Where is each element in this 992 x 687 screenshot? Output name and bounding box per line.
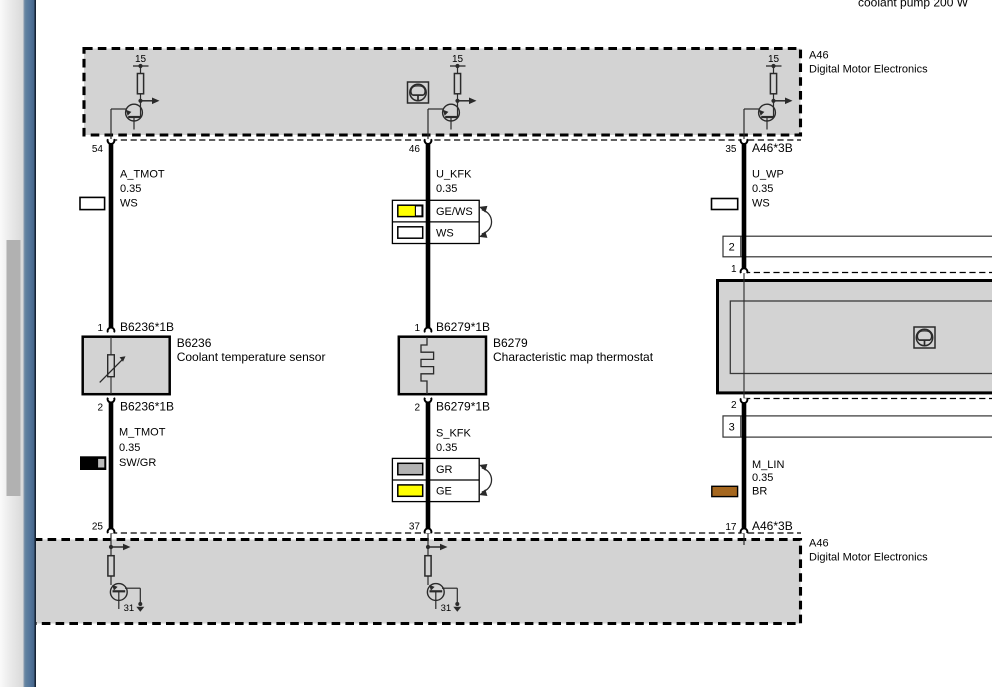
svg-text:B6236*1B: B6236*1B xyxy=(120,320,174,334)
svg-text:15: 15 xyxy=(452,54,464,65)
svg-text:B6279*1B: B6279*1B xyxy=(436,320,490,334)
svg-text:2: 2 xyxy=(731,400,737,411)
svg-text:2: 2 xyxy=(414,403,420,414)
svg-text:25: 25 xyxy=(92,522,104,533)
svg-text:A46*3B: A46*3B xyxy=(752,141,793,155)
svg-text:Digital Motor Electronics: Digital Motor Electronics xyxy=(809,63,928,75)
svg-text:M_LIN: M_LIN xyxy=(752,459,784,471)
svg-text:1: 1 xyxy=(97,323,103,334)
svg-text:A46*3B: A46*3B xyxy=(752,519,793,533)
svg-text:S_KFK: S_KFK xyxy=(436,427,472,439)
svg-text:0.35: 0.35 xyxy=(752,183,773,195)
svg-text:BR: BR xyxy=(752,485,767,497)
svg-text:35: 35 xyxy=(725,144,737,155)
svg-text:1: 1 xyxy=(731,264,737,275)
svg-text:0.35: 0.35 xyxy=(120,183,141,195)
svg-text:Digital Motor Electronics: Digital Motor Electronics xyxy=(809,552,928,564)
svg-text:0.35: 0.35 xyxy=(436,183,457,195)
svg-text:B6279: B6279 xyxy=(493,336,528,350)
svg-text:31: 31 xyxy=(124,603,135,614)
svg-text:GE/WS: GE/WS xyxy=(436,206,473,218)
svg-text:B6236*1B: B6236*1B xyxy=(120,400,174,414)
svg-text:B6279*1B: B6279*1B xyxy=(436,400,490,414)
svg-text:GR: GR xyxy=(436,464,453,476)
svg-text:WS: WS xyxy=(436,228,454,240)
svg-text:0.35: 0.35 xyxy=(436,442,457,454)
svg-text:15: 15 xyxy=(768,54,780,65)
svg-text:Coolant temperature sensor: Coolant temperature sensor xyxy=(177,350,326,364)
svg-text:1: 1 xyxy=(414,323,420,334)
svg-text:Characteristic map thermostat: Characteristic map thermostat xyxy=(493,350,654,364)
svg-text:coolant pump 200 W: coolant pump 200 W xyxy=(858,0,969,9)
svg-text:U_WP: U_WP xyxy=(752,169,784,181)
svg-text:0.35: 0.35 xyxy=(752,472,773,484)
svg-text:0.35: 0.35 xyxy=(119,442,140,454)
svg-text:54: 54 xyxy=(92,144,104,155)
svg-text:WS: WS xyxy=(752,198,770,210)
svg-text:2: 2 xyxy=(729,242,735,254)
svg-text:WS: WS xyxy=(120,198,138,210)
svg-text:46: 46 xyxy=(409,144,421,155)
svg-text:U_KFK: U_KFK xyxy=(436,169,472,181)
svg-text:15: 15 xyxy=(135,54,147,65)
svg-text:M_TMOT: M_TMOT xyxy=(119,427,166,439)
svg-text:37: 37 xyxy=(409,522,421,533)
svg-text:31: 31 xyxy=(441,603,452,614)
svg-text:A46: A46 xyxy=(809,538,829,550)
svg-text:2: 2 xyxy=(97,403,103,414)
svg-text:A_TMOT: A_TMOT xyxy=(120,169,165,181)
svg-text:SW/GR: SW/GR xyxy=(119,457,156,469)
svg-text:3: 3 xyxy=(729,422,735,434)
svg-text:A46: A46 xyxy=(809,49,829,61)
svg-text:B6236: B6236 xyxy=(177,336,212,350)
svg-text:17: 17 xyxy=(725,522,737,533)
svg-text:GE: GE xyxy=(436,486,452,498)
